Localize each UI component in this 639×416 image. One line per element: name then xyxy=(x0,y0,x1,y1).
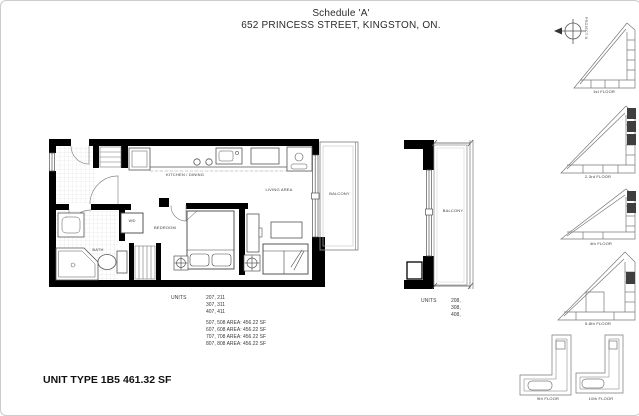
section-glazing xyxy=(426,170,433,256)
units-left-list: 207, 211 307, 311 407, 411 xyxy=(206,295,225,316)
stove-burner xyxy=(206,159,212,165)
unit-area-line: 807, 808 AREA: 456.22 SF xyxy=(206,341,266,348)
stove xyxy=(251,148,279,164)
kitchen-dining-label: KITCHEN / DINING xyxy=(145,173,225,178)
unit-highlight xyxy=(626,272,635,284)
living-area-label: LIVING AREA xyxy=(249,188,309,193)
unit-area-line: 607, 608 AREA: 456.22 SF xyxy=(206,327,266,334)
pillow xyxy=(190,254,209,266)
project-north-label: PROJECT N xyxy=(584,17,588,49)
keyplan-10th-floor xyxy=(576,335,623,393)
keyplan-2-3rd-floor xyxy=(561,106,636,173)
stove-burner xyxy=(194,159,200,165)
unit-area-line: 507, 508 AREA: 456.22 SF xyxy=(206,320,266,327)
units-right-line: 308, xyxy=(451,305,461,312)
dresser xyxy=(247,214,262,252)
main-balcony-label: BALCONY xyxy=(321,192,358,197)
window xyxy=(50,153,55,171)
section-balcony-label: BALCONY xyxy=(435,209,471,214)
schedule-title: Schedule 'A' xyxy=(171,8,511,20)
units-left-line: 407, 411 xyxy=(206,309,225,316)
unit-highlight xyxy=(627,108,636,119)
units-left-line: 207, 211 xyxy=(206,295,225,302)
units-right-list: 208, 308, 408, xyxy=(451,298,461,319)
entry-tile-floor xyxy=(56,146,96,203)
address-title: 652 PRINCESS STREET, KINGSTON, ON. xyxy=(171,20,511,32)
unit-highlight xyxy=(627,134,636,145)
toilet-bowl xyxy=(98,255,116,270)
north-arrow-icon xyxy=(554,19,586,44)
unit-type-label: UNIT TYPE 1B5 xyxy=(43,374,120,386)
washer-dryer-label: W/D xyxy=(121,219,143,223)
drawing-linework xyxy=(1,1,639,415)
units-left-areas: 507, 508 AREA: 456.22 SF 607, 608 AREA: … xyxy=(206,320,266,348)
bedroom-label: BEDROOM xyxy=(145,226,185,231)
floor-plan-sheet: Schedule 'A' 652 PRINCESS STREET, KINGST… xyxy=(0,0,639,416)
section-plan xyxy=(404,140,473,289)
keyplan-label-4th: 4th FLOOR xyxy=(571,242,631,247)
unit-highlight xyxy=(627,191,636,201)
pillow xyxy=(212,254,231,266)
keyplan-label-1st: 1st FLOOR xyxy=(574,90,634,95)
units-right-line: 408, xyxy=(451,312,461,319)
keyplan-label-9th: 9th FLOOR xyxy=(518,397,578,402)
keyplan-label-10th: 10th FLOOR xyxy=(571,397,631,402)
keyplan-label-5-8th: 5-8th FLOOR xyxy=(568,322,628,327)
unit-area-line: 707, 708 AREA: 456.22 SF xyxy=(206,334,266,341)
unit-area-label: 461.32 SF xyxy=(123,374,171,386)
unit-highlight xyxy=(627,203,636,213)
bedroom-closet xyxy=(135,246,155,279)
units-right-label: UNITS xyxy=(421,299,437,305)
unit-highlight xyxy=(627,121,636,132)
section-notch xyxy=(407,262,422,279)
sofa xyxy=(263,244,308,274)
entry-closet xyxy=(100,147,121,167)
bed xyxy=(187,211,234,269)
keyplan-5-8th-floor xyxy=(558,252,635,320)
keyplan-4th-floor xyxy=(561,189,636,239)
unit-plan xyxy=(49,139,358,287)
bath-label: BATH xyxy=(78,248,118,253)
units-right-line: 208, xyxy=(451,298,461,305)
balcony-door xyxy=(312,155,320,237)
section-balcony xyxy=(434,140,473,289)
units-left-label: UNITS xyxy=(171,296,187,302)
kitchen-fixtures xyxy=(129,147,312,171)
keyplan-label-2-3rd: 2-3rd FLOOR xyxy=(568,175,628,180)
units-left-line: 307, 311 xyxy=(206,302,225,309)
toilet-tank xyxy=(117,251,127,273)
keyplan-9th-floor xyxy=(520,335,571,395)
coffee-table xyxy=(271,222,302,238)
